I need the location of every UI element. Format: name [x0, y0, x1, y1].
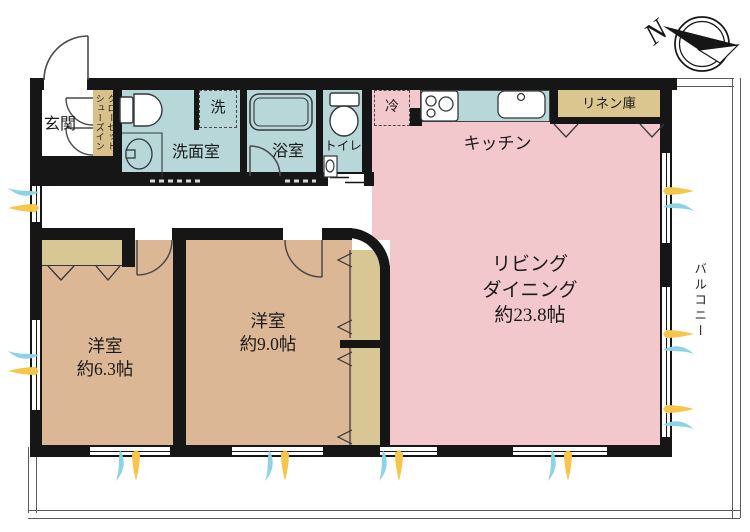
laundry-label: 洗: [203, 99, 233, 119]
compass-north-label: N: [637, 12, 675, 52]
balcony-edge-right: [732, 78, 741, 518]
wall-bedroom6-closet-right: [122, 228, 135, 267]
wall-right-2: [660, 243, 672, 287]
bedroom-6-label-line2: 約6.3帖: [77, 359, 134, 379]
wall-bottom-5: [607, 445, 672, 457]
north-compass-icon: N: [637, 12, 738, 71]
wall-linen-bottom: [550, 117, 660, 124]
wall-bottom-4: [437, 445, 513, 457]
wall-living-left: [380, 266, 390, 447]
fridge-label: 冷: [377, 99, 407, 117]
wall-top: [30, 78, 677, 90]
window-bottom-bedroom9: [232, 445, 323, 457]
bedroom-9-label-line1: 洋室: [251, 311, 286, 331]
entrance-door-swing-icon: [44, 36, 88, 80]
bedroom-9-label-line2: 約9.0帖: [240, 334, 297, 354]
shoes-closet-label-col2: クローゼット: [105, 89, 117, 155]
wall-bathroom-toilet: [316, 85, 323, 178]
bedroom-6-label-line1: 洋室: [88, 336, 123, 356]
kitchen-label: キッチン: [455, 133, 540, 155]
bedroom-9-label: 洋室 約9.0帖: [203, 310, 333, 356]
window-left-corridor: [30, 183, 42, 222]
window-right-1: [660, 153, 672, 243]
wall-bottom-3: [323, 445, 380, 457]
wall-bedrooms-top-1: [30, 228, 135, 240]
window-right-2: [660, 287, 672, 437]
balcony-label: バルコニー: [691, 253, 707, 348]
wall-bedrooms-top-2: [172, 228, 283, 240]
window-bottom-bedroom6: [90, 445, 170, 457]
bedroom-6-closet-floor: [42, 238, 122, 266]
entrance-doorway-gap: [44, 78, 87, 90]
shoes-closet-label: シューズインクローゼット: [93, 89, 116, 157]
bedroom-6-label: 洋室 約6.3帖: [40, 335, 170, 381]
wall-toilet-kitchen: [362, 78, 372, 186]
balcony-edge-top: [670, 78, 734, 87]
washroom-label: 洗面室: [156, 143, 236, 164]
bathroom-label: 浴室: [265, 142, 311, 163]
wall-bottom-2: [170, 445, 232, 457]
wall-washroom-bathroom: [240, 85, 247, 178]
toilet-label: トイレ: [322, 138, 364, 154]
wall-bedroom-divider: [173, 228, 186, 445]
wall-bedrooms-top-3: [322, 228, 352, 240]
genkan-label: 玄関: [36, 115, 84, 136]
toilet-floor: [323, 90, 362, 178]
living-dining-label: リビング ダイニング 約23.8帖: [445, 252, 615, 329]
wall-bottom-1: [30, 445, 90, 457]
shoes-closet-label-col1: シューズイン: [93, 89, 105, 155]
wall-right-1: [660, 78, 672, 153]
linen-closet-label: リネン庫: [568, 95, 650, 113]
floor-plan: N 玄関 シューズインクローゼッ: [0, 0, 750, 532]
window-bottom-living-2: [513, 445, 607, 457]
bathroom-floor: [247, 90, 316, 178]
wall-laundry-stub: [194, 85, 199, 130]
balcony-edge-bottom: [28, 510, 740, 519]
wall-closet-divider: [340, 340, 382, 348]
living-label-line2: ダイニング: [482, 280, 577, 301]
living-label-line3: 約23.8帖: [494, 305, 565, 326]
kitchen-counter: [420, 90, 550, 122]
living-label-line1: リビング: [492, 254, 568, 275]
wall-counter-stub: [410, 108, 422, 126]
